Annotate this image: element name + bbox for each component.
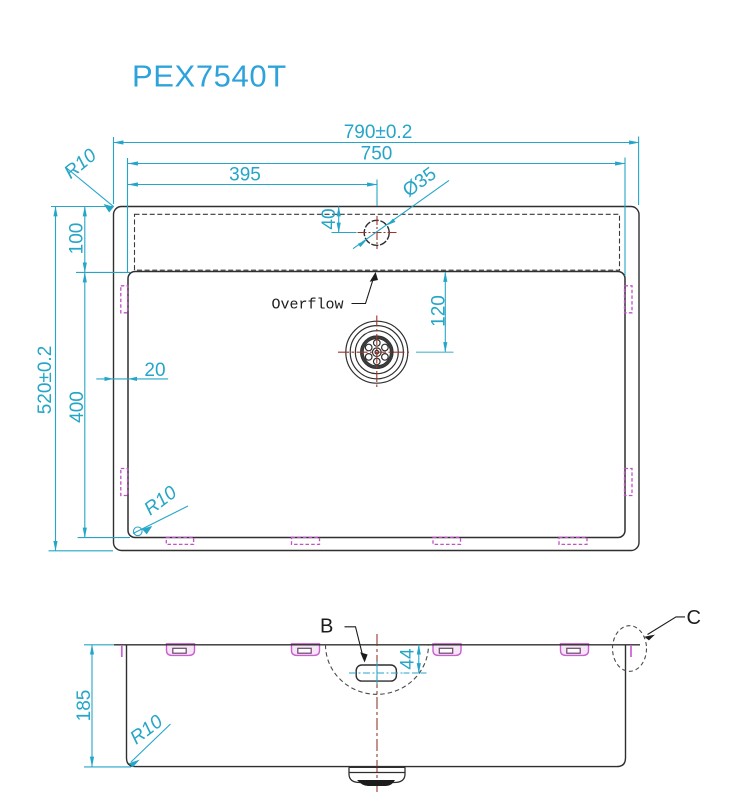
svg-text:Overflow: Overflow xyxy=(272,297,344,314)
svg-text:40: 40 xyxy=(319,208,340,229)
svg-text:520±0.2: 520±0.2 xyxy=(35,346,56,415)
svg-text:750: 750 xyxy=(361,144,393,165)
svg-text:395: 395 xyxy=(229,165,261,186)
svg-text:120: 120 xyxy=(429,295,450,327)
svg-text:B: B xyxy=(320,616,333,638)
svg-text:44: 44 xyxy=(398,648,419,670)
svg-text:400: 400 xyxy=(67,391,88,423)
svg-text:790±0.2: 790±0.2 xyxy=(344,122,413,143)
svg-text:185: 185 xyxy=(74,690,95,722)
svg-text:100: 100 xyxy=(67,223,88,255)
svg-text:20: 20 xyxy=(144,360,165,381)
svg-text:PEX7540T: PEX7540T xyxy=(132,59,287,94)
svg-text:C: C xyxy=(687,607,701,629)
